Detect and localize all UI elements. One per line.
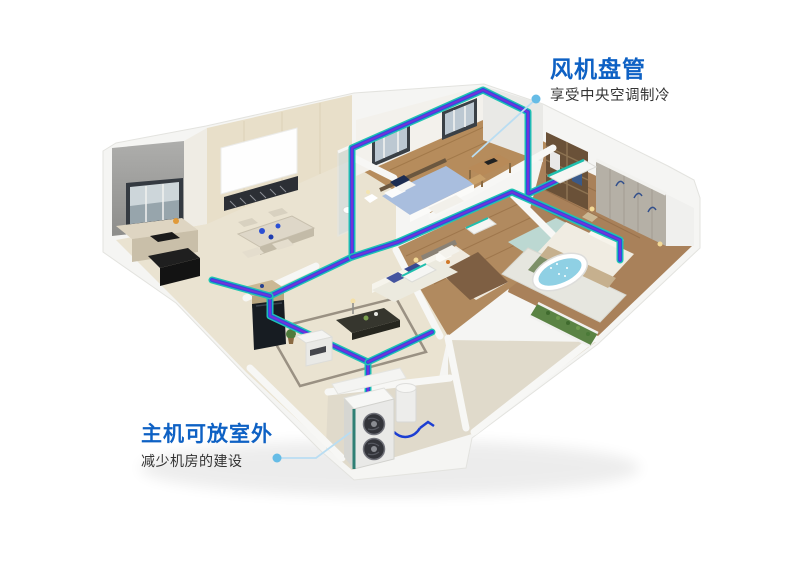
blue-plate [259, 228, 265, 234]
lamp [414, 258, 419, 263]
flowers [173, 218, 179, 224]
lamp [658, 242, 663, 247]
centerpiece [269, 235, 274, 240]
host-title: 主机可放室外 [141, 423, 273, 446]
table-decor [364, 316, 369, 321]
orange-cushion [446, 260, 450, 264]
fan-coil-title: 风机盘管 [550, 57, 670, 82]
floor-lamp [351, 299, 356, 304]
lamp [366, 190, 370, 194]
marketing-graphic: 风机盘管 享受中央空调制冷 主机可放室外 减少机房的建设 [0, 0, 800, 574]
plant-pot [288, 338, 294, 344]
lamp [590, 207, 595, 212]
callout-host-unit: 主机可放室外 减少机房的建设 [141, 423, 273, 470]
blue-plate [276, 224, 281, 229]
host-subtitle: 减少机房的建设 [141, 453, 273, 470]
vase [260, 284, 264, 288]
corner-pillar [184, 128, 207, 228]
apartment-illustration [0, 0, 800, 574]
host-leader-dot [273, 454, 282, 463]
buffer-tank [396, 384, 416, 423]
fan-coil-subtitle: 享受中央空调制冷 [550, 88, 670, 105]
callout-fan-coil: 风机盘管 享受中央空调制冷 [550, 57, 670, 106]
table-decor [374, 312, 378, 316]
fan-coil-leader-dot [532, 95, 541, 104]
